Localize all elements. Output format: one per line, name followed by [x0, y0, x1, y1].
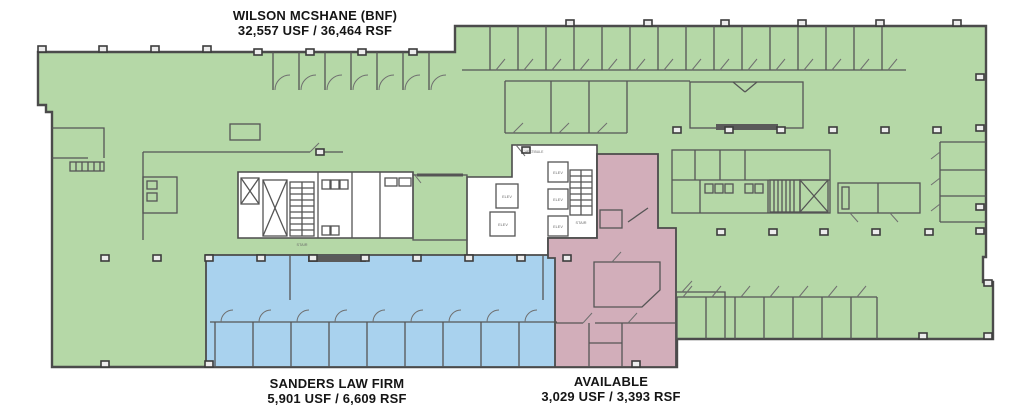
- label-available: AVAILABLE 3,029 USF / 3,393 RSF: [477, 374, 745, 404]
- elev-label: ELEV: [553, 225, 563, 229]
- floor-plan-svg: ELEV ELEV ELEV ELEV ELEV STAIR STAIR VES…: [0, 0, 1024, 418]
- tenant-name: WILSON MCSHANE (BNF): [180, 8, 450, 23]
- tenant-name: AVAILABLE: [477, 374, 745, 389]
- elev-label: ELEV: [498, 223, 508, 227]
- stair-label: STAIR: [297, 243, 308, 247]
- label-sanders-law-firm: SANDERS LAW FIRM 5,901 USF / 6,609 RSF: [202, 376, 472, 406]
- tenant-name: SANDERS LAW FIRM: [202, 376, 472, 391]
- floor-plan-page: ELEV ELEV ELEV ELEV ELEV STAIR STAIR VES…: [0, 0, 1024, 418]
- tenant-area: 32,557 USF / 36,464 RSF: [180, 23, 450, 38]
- stair-label: STAIR: [576, 221, 587, 225]
- label-wilson-mcshane: WILSON MCSHANE (BNF) 32,557 USF / 36,464…: [180, 8, 450, 38]
- elev-label: ELEV: [553, 198, 563, 202]
- elev-label: ELEV: [502, 195, 512, 199]
- tenant-area: 3,029 USF / 3,393 RSF: [477, 389, 745, 404]
- tenant-area: 5,901 USF / 6,609 RSF: [202, 391, 472, 406]
- vestibule-label: VESTIBULE: [525, 150, 544, 154]
- elev-label: ELEV: [553, 171, 563, 175]
